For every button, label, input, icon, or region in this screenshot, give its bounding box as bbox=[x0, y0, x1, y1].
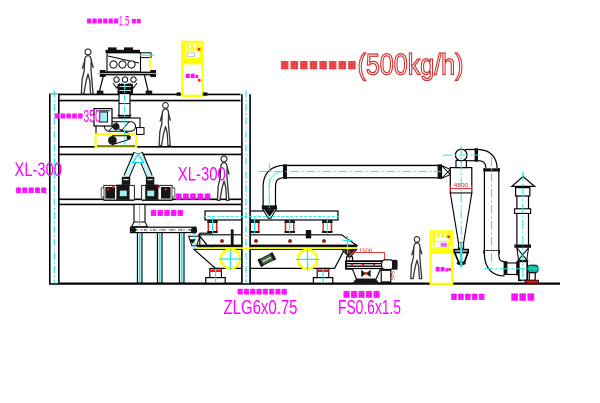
svg-text:1500: 1500 bbox=[359, 249, 372, 255]
svg-text:XL-300: XL-300 bbox=[178, 164, 226, 185]
svg-text:(500kg/h): (500kg/h) bbox=[358, 49, 464, 82]
svg-text:FS0.6x1.5: FS0.6x1.5 bbox=[338, 297, 401, 319]
svg-text:XL-300: XL-300 bbox=[15, 160, 63, 181]
svg-text:ZLG6x0.75: ZLG6x0.75 bbox=[224, 297, 298, 319]
svg-text:1.5: 1.5 bbox=[119, 12, 130, 28]
svg-text:350: 350 bbox=[83, 106, 101, 126]
